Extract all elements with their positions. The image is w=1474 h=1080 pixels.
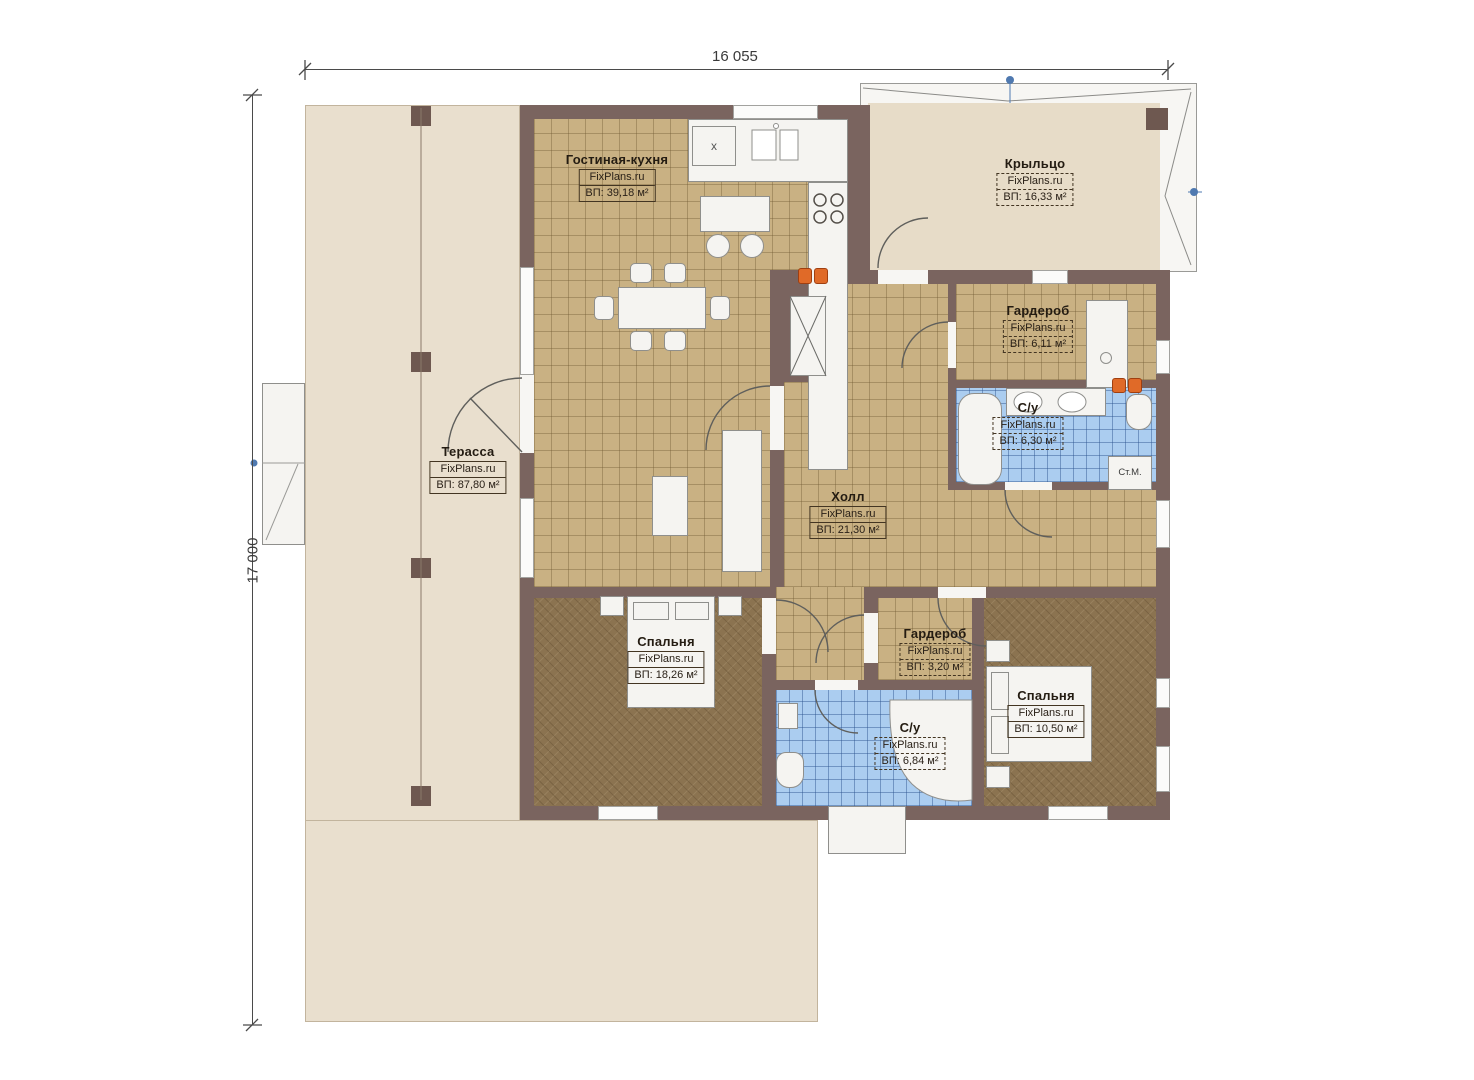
room-label-terrace: Терасса FixPlans.ru ВП: 87,80 м² (429, 444, 506, 494)
room-area: ВП: 3,20 м² (900, 660, 969, 675)
pillow (675, 602, 709, 620)
nightstand (718, 596, 742, 616)
window-kitchen-top (733, 105, 818, 119)
room-brand: FixPlans.ru (579, 170, 654, 186)
wardrobe-handle (1100, 352, 1112, 364)
wall-kitchen-hall-b (770, 450, 784, 587)
room-brand: FixPlans.ru (875, 738, 944, 754)
radiator (1128, 378, 1142, 393)
chair (710, 296, 730, 320)
room-brand: FixPlans.ru (430, 462, 505, 478)
room-brand: FixPlans.ru (628, 652, 703, 668)
bar-stool (740, 234, 764, 258)
door-opening-wardrobeT (948, 322, 956, 368)
door-opening-wardrobeS (864, 613, 878, 663)
room-label-living-kitchen: Гостиная-кухня FixPlans.ru ВП: 39,18 м² (566, 152, 668, 202)
yard-area (305, 820, 818, 1022)
room-area: ВП: 21,30 м² (810, 523, 885, 538)
room-label-bedroom-right: Спальня FixPlans.ru ВП: 10,50 м² (1007, 688, 1084, 738)
back-entrance-step (828, 806, 906, 854)
room-label-bathroom-bottom: С/у FixPlans.ru ВП: 6,84 м² (874, 720, 945, 770)
room-name: Спальня (627, 634, 704, 649)
room-label-wardrobe-small: Гардероб FixPlans.ru ВП: 3,20 м² (899, 626, 970, 676)
room-brand: FixPlans.ru (993, 418, 1062, 434)
dining-table (618, 287, 706, 329)
wall-kitchen-hall-a (770, 284, 784, 386)
dimension-line-top (305, 69, 1168, 70)
room-brand: FixPlans.ru (1004, 321, 1072, 337)
chair (630, 331, 652, 351)
room-name: Гардероб (1003, 303, 1073, 318)
room-name: Терасса (429, 444, 506, 459)
hall-cabinet (790, 296, 826, 376)
window-right-2 (1156, 500, 1170, 548)
room-area: ВП: 6,84 м² (875, 754, 944, 769)
pillow (991, 716, 1009, 754)
chair (664, 263, 686, 283)
room-label-porch: Крыльцо FixPlans.ru ВП: 16,33 м² (996, 156, 1073, 206)
kitchen-island (700, 196, 770, 232)
pillow (991, 672, 1009, 710)
terrace-column (411, 786, 431, 806)
terrace-side-steps (262, 383, 305, 545)
wall-kitchen-porch (848, 105, 870, 284)
room-area: ВП: 18,26 м² (628, 668, 703, 683)
floor-plan-canvas: x Ст.М. 16 055 17 000 (0, 0, 1474, 1080)
door-opening-bathB (815, 680, 858, 690)
wall-bedroomL-corridor (762, 654, 776, 806)
door-opening-terrace (520, 375, 534, 453)
pillow (633, 602, 669, 620)
wall-bathB-top-a (762, 680, 815, 690)
room-label-hall: Холл FixPlans.ru ВП: 21,30 м² (809, 489, 886, 539)
room-name: Гардероб (899, 626, 970, 641)
room-area: ВП: 10,50 м² (1008, 722, 1083, 737)
nightstand (986, 640, 1010, 662)
coffee-table (652, 476, 688, 536)
window-right-4 (1156, 746, 1170, 792)
room-brand: FixPlans.ru (900, 644, 969, 660)
toilet (776, 752, 804, 788)
toilet (1126, 394, 1152, 430)
nightstand (600, 596, 624, 616)
room-label-wardrobe-top: Гардероб FixPlans.ru ВП: 6,11 м² (1003, 303, 1073, 353)
nightstand (986, 766, 1010, 788)
fridge-mark-label: x (711, 139, 717, 153)
room-label-bathroom-top: С/у FixPlans.ru ВП: 6,30 м² (992, 400, 1063, 450)
wall-left (520, 105, 534, 820)
wall-mid-c (986, 587, 1156, 598)
washing-machine-label: Ст.М. (1108, 456, 1152, 490)
terrace-column (411, 106, 431, 126)
room-name: Холл (809, 489, 886, 504)
sofa (722, 430, 762, 572)
window-bottom-1 (598, 806, 658, 820)
wall-bedroomR-left (972, 587, 984, 806)
chair (664, 331, 686, 351)
terrace-column (411, 558, 431, 578)
bar-stool (706, 234, 730, 258)
room-name: Спальня (1007, 688, 1084, 703)
wall-hall-wardrobeT-a (948, 284, 956, 322)
window-bottom-2 (1048, 806, 1108, 820)
radiator (814, 268, 828, 284)
wall-mid-b (864, 587, 938, 598)
wardrobe-unit (1086, 300, 1128, 388)
wall-bathB-top-b (858, 680, 984, 690)
door-opening-bathT (1005, 482, 1052, 490)
door-opening-entrance (878, 270, 928, 284)
terrace-column (411, 352, 431, 372)
dimension-width-label: 16 055 (712, 48, 758, 65)
window-right-1 (1156, 340, 1170, 374)
corridor-floor (776, 587, 864, 684)
room-area: ВП: 6,30 м² (993, 434, 1062, 449)
room-name: Крыльцо (996, 156, 1073, 171)
room-area: ВП: 87,80 м² (430, 478, 505, 493)
door-opening-kitchen (770, 386, 784, 450)
room-area: ВП: 6,11 м² (1004, 337, 1072, 352)
window-left-2 (520, 498, 534, 578)
radiator (1112, 378, 1126, 393)
chair (630, 263, 652, 283)
window-wardrobeT (1032, 270, 1068, 284)
door-opening-bedroomR (938, 587, 986, 598)
room-label-bedroom-left: Спальня FixPlans.ru ВП: 18,26 м² (627, 634, 704, 684)
room-name: С/у (992, 400, 1063, 415)
room-brand: FixPlans.ru (810, 507, 885, 523)
radiator (798, 268, 812, 284)
door-opening-bedroomL (762, 598, 776, 654)
room-area: ВП: 39,18 м² (579, 186, 654, 201)
sink (778, 703, 798, 729)
window-left-1 (520, 267, 534, 375)
wall-hall-wardrobeT-b (948, 368, 956, 482)
room-brand: FixPlans.ru (1008, 706, 1083, 722)
wall-corridor-wardrobe-a (864, 598, 878, 613)
chair (594, 296, 614, 320)
fridge: x (692, 126, 736, 166)
window-right-3 (1156, 678, 1170, 708)
room-area: ВП: 16,33 м² (997, 190, 1072, 205)
room-name: С/у (874, 720, 945, 735)
room-name: Гостиная-кухня (566, 152, 668, 167)
dimension-height-label: 17 000 (244, 538, 261, 584)
porch-column (1146, 108, 1168, 130)
room-brand: FixPlans.ru (997, 174, 1072, 190)
